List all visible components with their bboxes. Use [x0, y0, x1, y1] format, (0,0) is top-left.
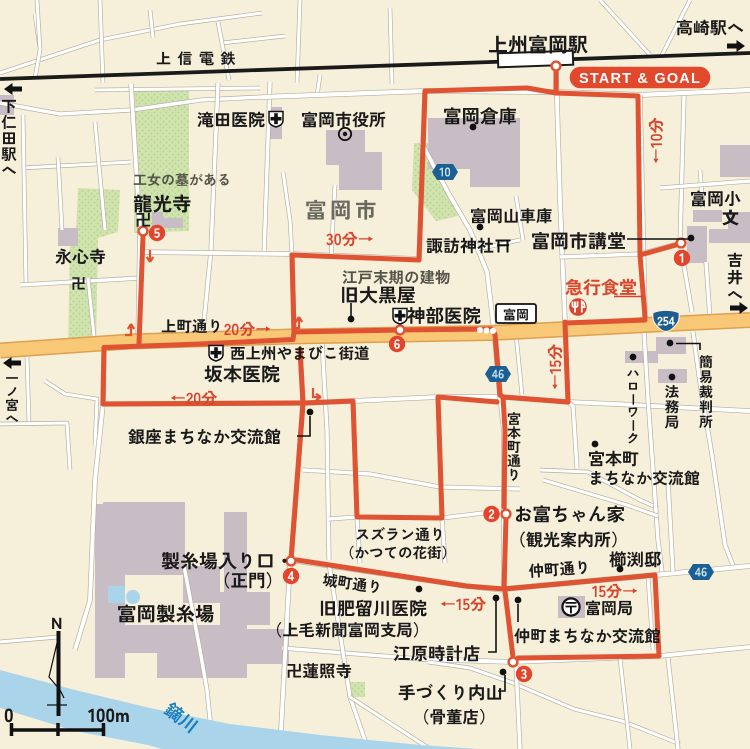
svg-text:START & GOAL: START & GOAL: [579, 71, 701, 87]
